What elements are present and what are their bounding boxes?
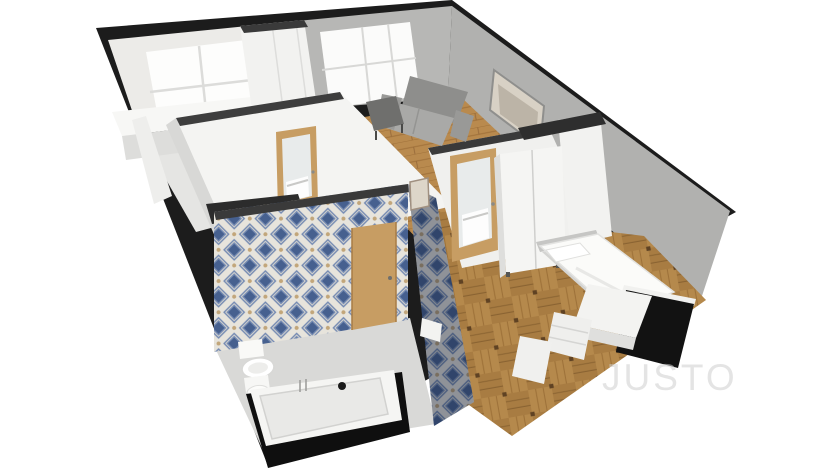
toilet-tank [238, 339, 264, 359]
mirror-door-2-handle [491, 202, 495, 206]
floorplan-image: JUSTO [0, 0, 832, 468]
floorplan-canvas: JUSTO [0, 0, 832, 468]
hallway-small-picture [410, 178, 429, 210]
bathroom-door-handle [388, 276, 392, 280]
bathtub-drain [338, 382, 346, 390]
mirror-door-1-handle [311, 170, 314, 173]
bathroom-door [352, 222, 396, 330]
watermark-text: JUSTO [602, 357, 738, 398]
